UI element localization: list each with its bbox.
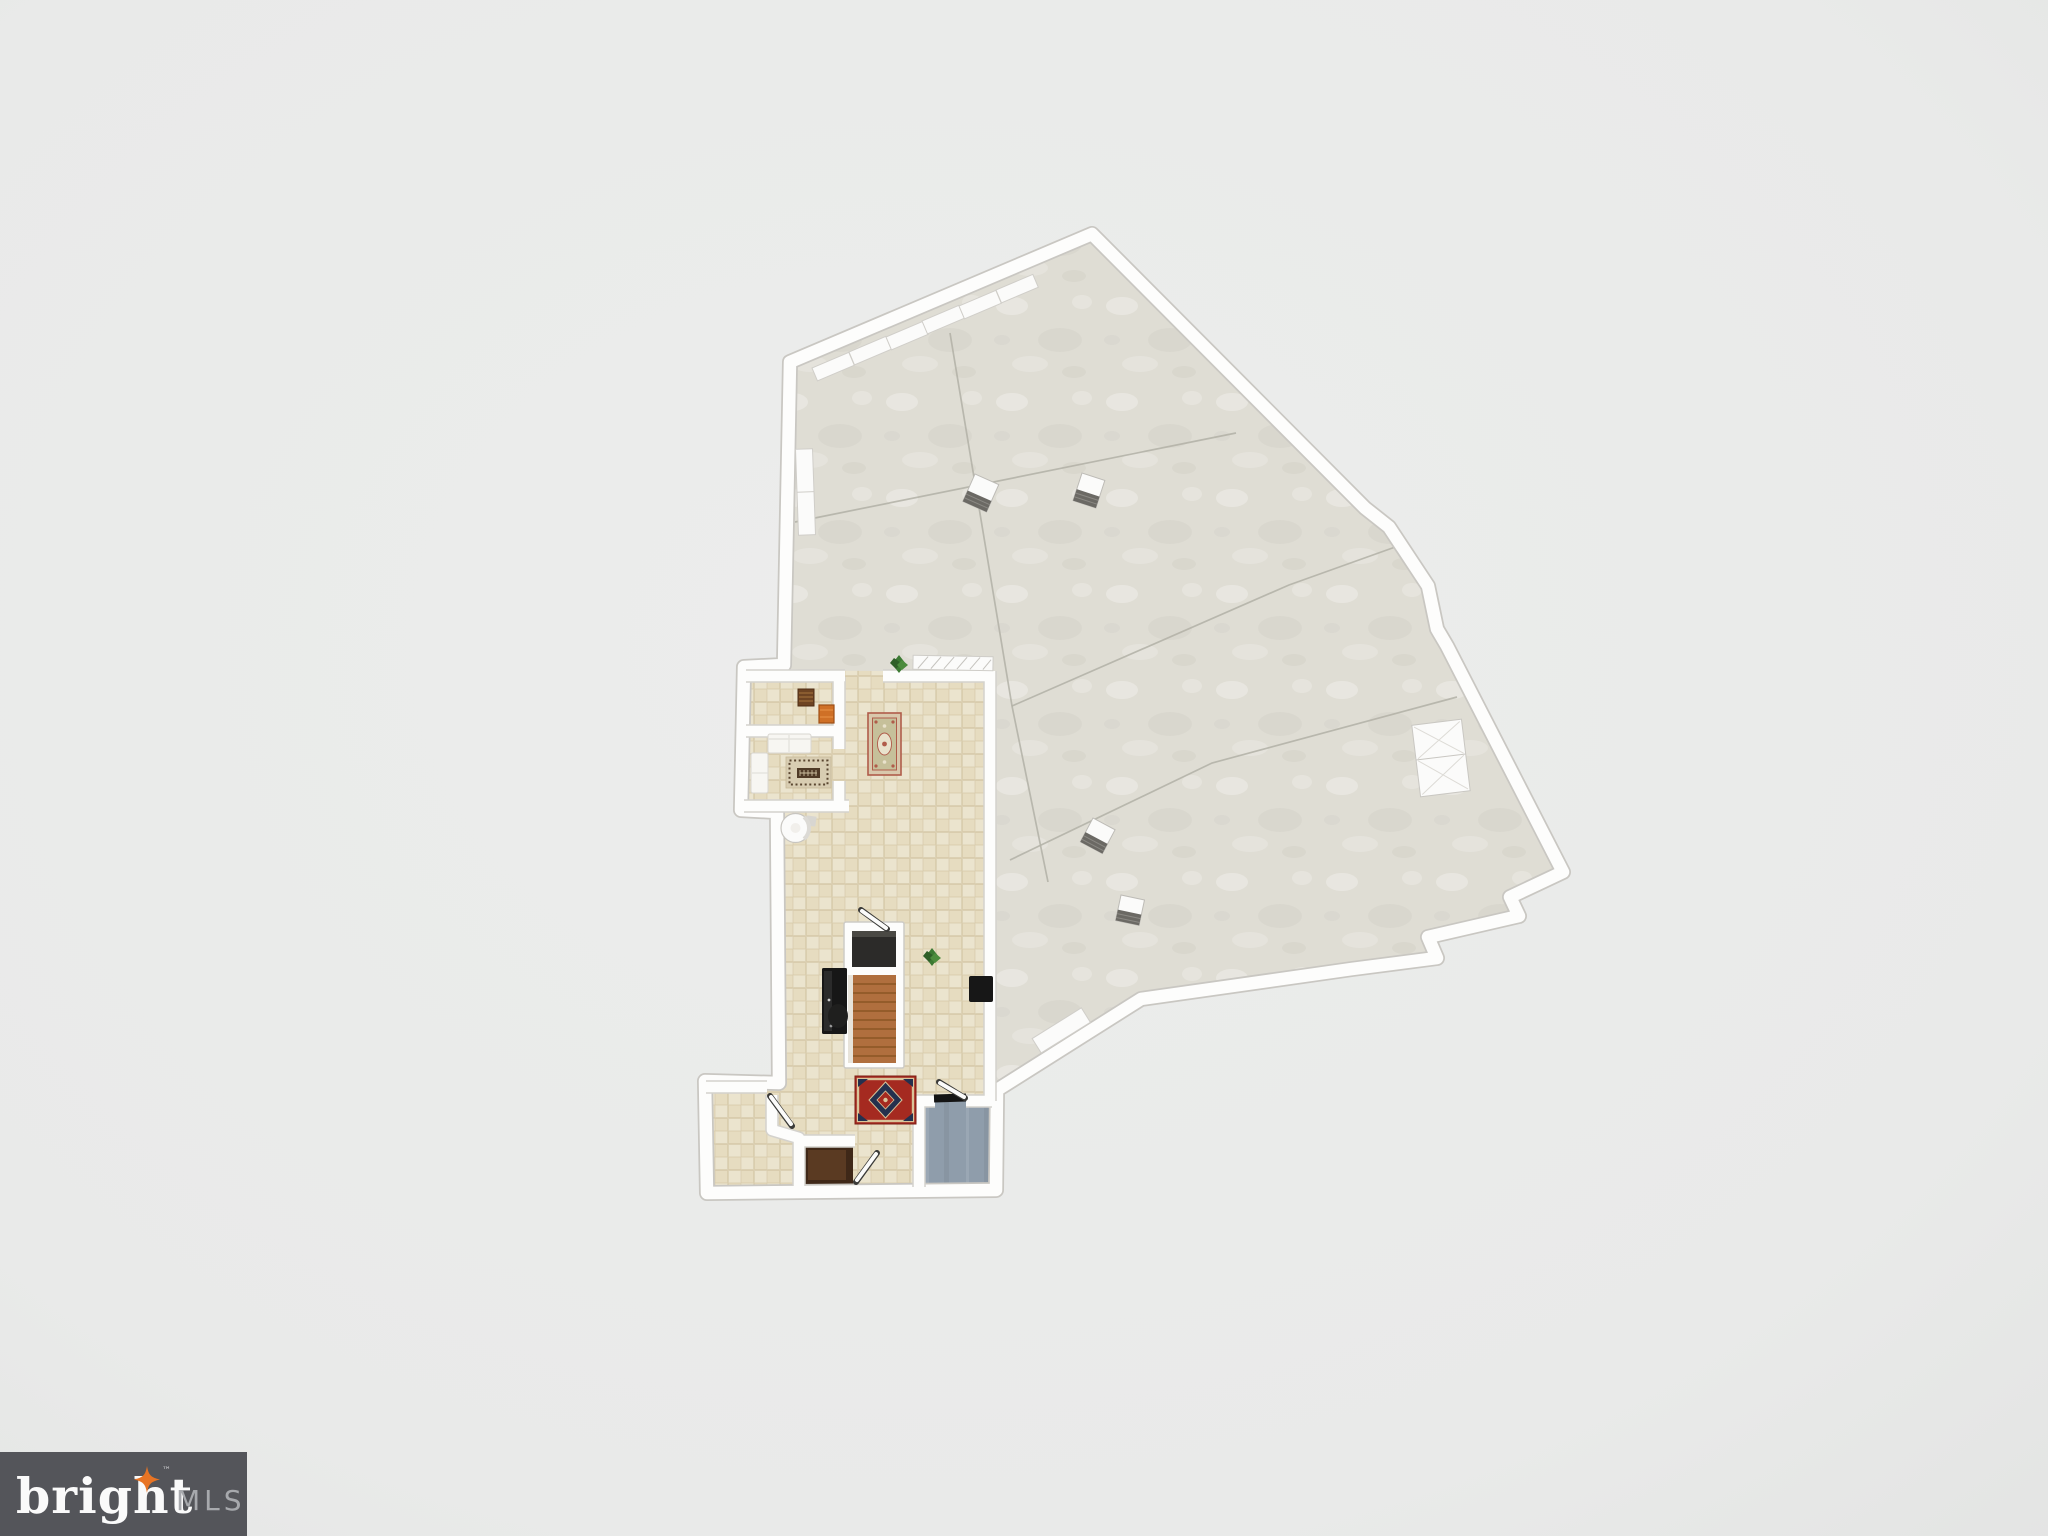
desk-chair: [828, 1004, 848, 1028]
red-area-rug: [855, 1076, 916, 1124]
brightmls-logo: bright ™ MLS: [0, 1452, 247, 1536]
basement-floor-plan: bright ™ MLS: [0, 0, 2048, 1536]
stairwell-void-highlight: [852, 931, 896, 937]
printer: [969, 976, 993, 1002]
closet-wood-floor-inner: [808, 1150, 846, 1180]
folding-table: [1412, 719, 1470, 797]
hatched-shelf-strip: [913, 655, 993, 670]
orange-crate: [819, 705, 834, 723]
logo-tm: ™: [162, 1466, 171, 1476]
wooden-stairs: [853, 975, 896, 1063]
ornate-area-rug: [868, 713, 901, 775]
logo-mls-text: MLS: [176, 1484, 246, 1517]
left-wall-shelf: [796, 449, 816, 536]
utility-room-blue-texture: [919, 1101, 990, 1186]
stairwell: [844, 910, 904, 1068]
sitting-room-rug: [786, 757, 831, 788]
floorplan-screenshot: bright ™ MLS: [0, 0, 2048, 1536]
wooden-chest: [798, 689, 814, 706]
storage-box: [1116, 895, 1145, 925]
